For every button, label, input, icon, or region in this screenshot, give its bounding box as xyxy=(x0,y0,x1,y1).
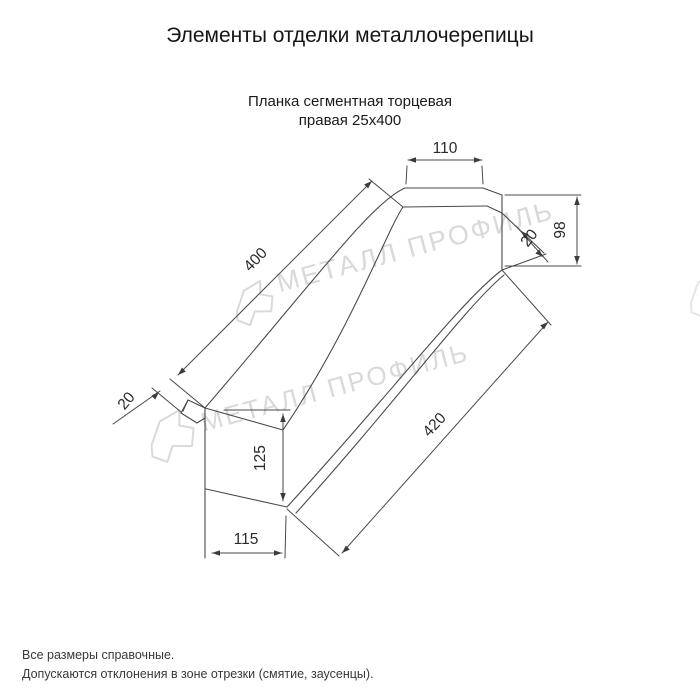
dim-label-98: 98 xyxy=(552,221,569,238)
dimensions: 110 98 20 xyxy=(113,140,581,558)
dim-label-20-left: 20 xyxy=(114,389,138,413)
catalog-page: Элементы отделки металлочерепицы Планка … xyxy=(0,0,700,700)
dimension-right-hem: 20 xyxy=(516,226,548,262)
dim-label-420: 420 xyxy=(420,409,450,440)
left-end-bottom-edge xyxy=(206,489,287,507)
right-end-top-edge xyxy=(483,188,502,195)
watermark-edge-fragment xyxy=(683,271,700,320)
dimension-top-width: 110 xyxy=(406,140,483,184)
watermark-lower: МЕТАЛЛ ПРОФИЛЬ xyxy=(143,334,476,465)
technical-drawing: МЕТАЛЛ ПРОФИЛЬ МЕТАЛЛ ПРОФИЛЬ xyxy=(0,0,700,700)
dimension-length-bottom: 420 xyxy=(287,270,551,556)
footer-notes: Все размеры справочные. Допускаются откл… xyxy=(22,646,374,683)
footer-note-2: Допускаются отклонения в зоне отрезки (с… xyxy=(22,665,374,684)
dimension-left-hem: 20 xyxy=(113,388,181,424)
dim-label-125: 125 xyxy=(252,445,269,471)
right-hem-edge xyxy=(502,254,546,270)
dim-label-110: 110 xyxy=(433,140,458,157)
watermark-text: МЕТАЛЛ ПРОФИЛЬ xyxy=(273,195,557,298)
metal-profil-logo-icon xyxy=(229,279,278,328)
metal-profil-logo-icon xyxy=(143,408,201,466)
metal-profil-logo-icon xyxy=(683,271,700,320)
left-hem-flap-crease xyxy=(183,400,188,411)
dim-label-400: 400 xyxy=(241,244,271,275)
dimension-bottom-width: 115 xyxy=(212,516,286,558)
dim-label-115: 115 xyxy=(234,531,259,548)
watermark-center: МЕТАЛЛ ПРОФИЛЬ xyxy=(227,195,562,328)
footer-note-1: Все размеры справочные. xyxy=(22,646,374,665)
